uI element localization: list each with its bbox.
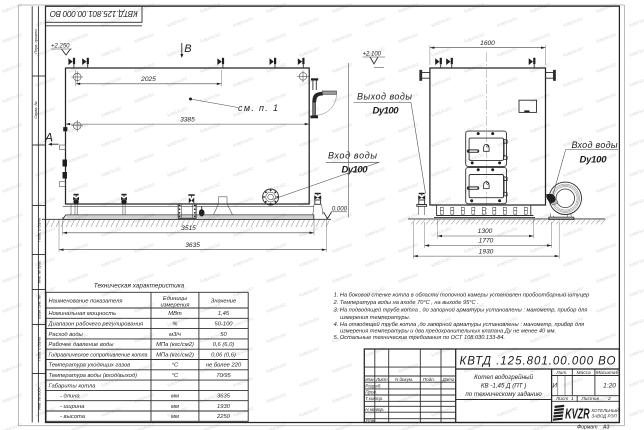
svg-text:- длина: - длина xyxy=(60,394,80,400)
svg-text:м3/ч: м3/ч xyxy=(169,332,181,338)
svg-text:Вход воды: Вход воды xyxy=(572,140,618,150)
svg-text:1770: 1770 xyxy=(479,238,494,245)
svg-text:Дата: Дата xyxy=(442,377,455,382)
svg-text:Dy100: Dy100 xyxy=(580,155,608,166)
svg-text:мм: мм xyxy=(171,414,179,420)
svg-text:1930: 1930 xyxy=(479,248,494,255)
svg-text:3515: 3515 xyxy=(181,225,196,232)
svg-text:3635: 3635 xyxy=(185,242,200,249)
svg-text:Разраб.: Разраб. xyxy=(365,383,381,388)
svg-text:измерения температуры.: измерения температуры. xyxy=(340,315,410,321)
svg-text:Н.контр.: Н.контр. xyxy=(365,407,384,412)
svg-text:КВ -1,45 Д (ПТ ): КВ -1,45 Д (ПТ ) xyxy=(481,382,527,389)
svg-text:мм: мм xyxy=(171,404,179,410)
svg-text:КВТД.125.801.00.000 ВО: КВТД.125.801.00.000 ВО xyxy=(50,9,138,18)
svg-text:Подп.: Подп. xyxy=(423,377,435,382)
svg-text:Пров.: Пров. xyxy=(365,390,377,395)
svg-text:Температура воды (вход/выход): Температура воды (вход/выход) xyxy=(49,373,138,379)
svg-text:Инв. № дубл.: Инв. № дубл. xyxy=(38,260,42,283)
svg-text:Перв. примен.: Перв. примен. xyxy=(34,28,38,53)
svg-text:1. На боковой стенке котла в: 1. На боковой стенке котла в области топ… xyxy=(334,292,590,299)
svg-text:измерения: измерения xyxy=(160,302,189,308)
svg-text:5. Остальные технические треб: 5. Остальные технические требования по О… xyxy=(334,335,505,341)
svg-text:Номинальная мощность: Номинальная мощность xyxy=(49,311,117,317)
svg-text:Лит.: Лит. xyxy=(555,370,567,376)
svg-text:2025: 2025 xyxy=(140,76,156,83)
svg-text:1:20: 1:20 xyxy=(603,383,616,390)
svg-text:2. Температура воды на входе: 2. Температура воды на входе 70°С , на в… xyxy=(333,300,479,306)
svg-text:+2.100: +2.100 xyxy=(363,52,382,58)
svg-text:Вход воды: Вход воды xyxy=(328,151,377,161)
svg-text:ЗАВОД РЭП: ЗАВОД РЭП xyxy=(592,414,618,419)
svg-text:70/95: 70/95 xyxy=(216,373,231,379)
svg-text:1600: 1600 xyxy=(480,40,495,47)
svg-text:°С: °С xyxy=(172,363,179,369)
svg-text:1: 1 xyxy=(571,396,574,402)
svg-text:Единицы: Единицы xyxy=(163,296,188,302)
svg-text:Утв.: Утв. xyxy=(365,418,375,423)
svg-text:Наименование показателя: Наименование показателя xyxy=(49,299,123,305)
svg-text:2250: 2250 xyxy=(216,414,231,420)
svg-text:4. На отводящей трубе котла ,: 4. На отводящей трубе котла ,до запорной… xyxy=(334,321,585,328)
svg-text:Масштаб: Масштаб xyxy=(596,370,619,376)
svg-text:Взам. инв. №: Взам. инв. № xyxy=(38,295,42,318)
svg-text:не более 220: не более 220 xyxy=(206,363,242,369)
svg-text:Dy100: Dy100 xyxy=(373,106,400,117)
svg-text:Масса: Масса xyxy=(577,370,592,376)
svg-text:А: А xyxy=(44,131,53,145)
svg-text:2: 2 xyxy=(607,396,611,402)
svg-text:Гидравлическое сопротивление к: Гидравлическое сопротивление котла xyxy=(49,352,148,358)
svg-text:Листов: Листов xyxy=(581,396,600,402)
svg-text:0,6 (6,0): 0,6 (6,0) xyxy=(213,342,235,348)
svg-text:- ширина: - ширина xyxy=(60,404,85,410)
svg-text:Лист: Лист xyxy=(375,377,388,382)
svg-text:N докум.: N докум. xyxy=(395,377,413,382)
svg-text:50-100: 50-100 xyxy=(214,322,233,328)
svg-text:+2.250: +2.250 xyxy=(51,44,70,50)
svg-text:Техническая характеристика: Техническая характеристика xyxy=(94,283,185,290)
svg-text:МВт: МВт xyxy=(168,311,182,317)
svg-text:МПа (кгс/см2): МПа (кгс/см2) xyxy=(156,352,194,358)
svg-text:по техническому заданию: по техническому заданию xyxy=(465,391,542,398)
svg-text:Выход воды: Выход воды xyxy=(357,92,412,102)
svg-text:1300: 1300 xyxy=(478,228,493,235)
svg-text:3385: 3385 xyxy=(180,116,195,123)
svg-text:МПа (кгс/см2): МПа (кгс/см2) xyxy=(156,342,194,348)
svg-text:В: В xyxy=(184,43,191,55)
svg-text:Расход воды: Расход воды xyxy=(49,332,84,338)
svg-text:И: И xyxy=(552,383,557,390)
svg-text:Подп. и дата: Подп. и дата xyxy=(38,218,42,242)
svg-text:КВТД .125.801.00.000 ВО: КВТД .125.801.00.000 ВО xyxy=(460,356,616,368)
svg-text:3635: 3635 xyxy=(217,394,231,400)
svg-text:Рабочее давление воды: Рабочее давление воды xyxy=(49,342,115,348)
svg-text:0,06 (0,6): 0,06 (0,6) xyxy=(211,352,236,358)
svg-text:°С: °С xyxy=(172,373,179,379)
svg-text:Формат: Формат xyxy=(577,424,598,430)
svg-text:измерения температуры и два пр: измерения температуры и два предохраните… xyxy=(340,328,556,334)
svg-text:А3: А3 xyxy=(602,424,609,430)
svg-text:Справ. №: Справ. № xyxy=(34,101,38,118)
svg-text:Габариты котла: Габариты котла xyxy=(49,383,97,389)
svg-text:50: 50 xyxy=(220,332,227,338)
svg-text:Котел водогрейный: Котел водогрейный xyxy=(474,374,533,381)
svg-text:Диапазон рабочего регулировани: Диапазон рабочего регулирования xyxy=(48,322,144,328)
svg-text:Т.контр.: Т.контр. xyxy=(365,396,383,401)
svg-text:КОТЕЛЬНЫЙ: КОТЕЛЬНЫЙ xyxy=(592,408,620,413)
svg-text:1930: 1930 xyxy=(217,404,231,410)
svg-text:KVZR: KVZR xyxy=(565,405,590,422)
svg-text:Подп. и дата: Подп. и дата xyxy=(38,337,42,361)
svg-text:Значение: Значение xyxy=(211,299,237,305)
svg-text:Температура уходящих газов: Температура уходящих газов xyxy=(49,363,131,369)
svg-text:%: % xyxy=(172,322,177,328)
svg-text:3. На подводящей трубе котла: 3. На подводящей трубе котла , до запорн… xyxy=(334,307,588,314)
svg-text:мм: мм xyxy=(171,394,179,400)
svg-text:- высота: - высота xyxy=(60,414,86,420)
svg-text:1,45: 1,45 xyxy=(218,311,230,317)
svg-text:Инв. № подл.: Инв. № подл. xyxy=(38,386,42,410)
svg-text:Лист: Лист xyxy=(555,396,568,402)
svg-text:Изм: Изм xyxy=(365,377,373,382)
